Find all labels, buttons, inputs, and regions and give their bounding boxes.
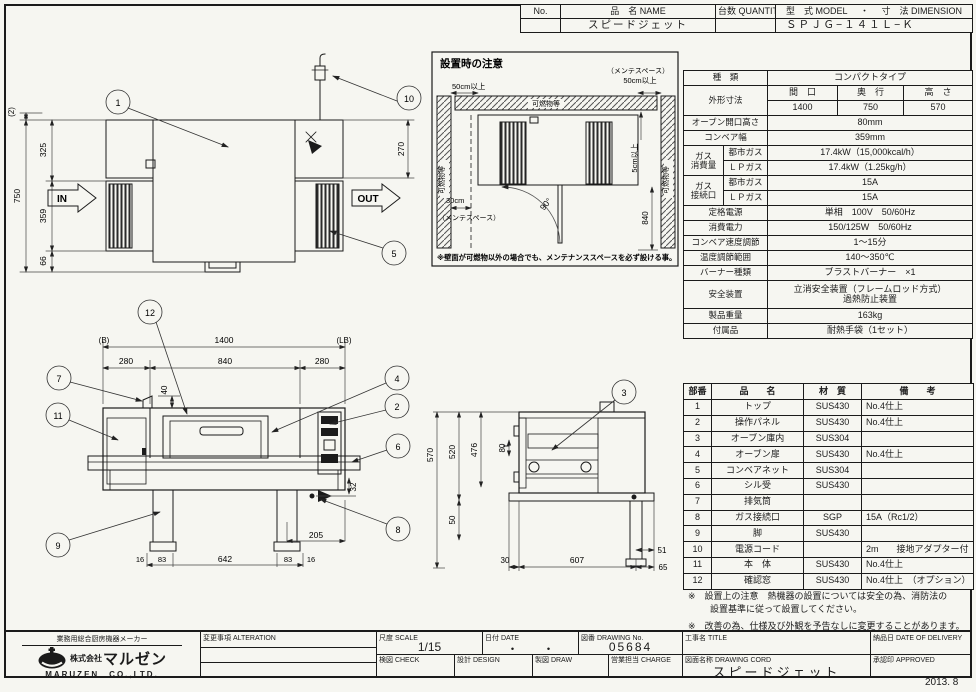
header-no-value	[521, 19, 561, 33]
issue-date: 2013. 8	[925, 677, 958, 688]
spec-city-gas-label: 都市ガス	[724, 146, 768, 161]
parts-cell: SUS430	[804, 447, 862, 463]
spec-conn-city-value: 15A	[768, 176, 973, 191]
parts-header-cell: 部番	[684, 384, 712, 400]
parts-cell	[804, 494, 862, 510]
spec-consumption-value: 150/125W 50/60Hz	[768, 221, 973, 236]
plan-in-label: IN	[57, 194, 67, 205]
plan-balloon-1: 1	[115, 98, 120, 108]
spec-burner-label: バーナー種類	[684, 266, 768, 281]
spec-conn-city-label: 都市ガス	[724, 176, 768, 191]
spec-lp-gas-value: 17.4kW（1.25kg/h）	[768, 161, 973, 176]
parts-cell: 5	[684, 463, 712, 479]
plan-dim-325: 325	[38, 143, 48, 157]
parts-row: 10電源コード2m 接地アダプター付	[684, 542, 974, 558]
header-name-value: スピードジェット	[561, 19, 716, 33]
parts-cell: 6	[684, 478, 712, 494]
side-dim-80: 80	[498, 443, 507, 452]
front-dim-280l: 280	[119, 356, 133, 366]
spec-accessory-label: 付属品	[684, 324, 768, 339]
side-dim-607: 607	[570, 555, 584, 565]
parts-header-cell: 材 質	[804, 384, 862, 400]
parts-header-row: 部番品 名材 質備 考	[684, 384, 974, 400]
parts-cell: SUS304	[804, 431, 862, 447]
front-balloon-9: 9	[55, 541, 60, 551]
spec-speed-value: 1〜15分	[768, 236, 973, 251]
side-dim-476: 476	[469, 443, 479, 457]
install-note-view: 設置時の注意 可燃物等 可燃物等 可燃物等 90°	[432, 52, 678, 266]
charge-label: 営業担当 CHARGE	[611, 655, 671, 665]
spec-height-label: 高 さ	[904, 86, 973, 101]
drawing-sheet: (2) 325 750 359 66 270 IN OUT 1 10 5	[0, 0, 976, 692]
plan-dim-750: 750	[12, 189, 22, 203]
note-1-line-1: ※ 設置上の注意 熱機器の設置については安全の為、消防法の	[688, 590, 972, 603]
parts-cell: 電源コード	[712, 542, 804, 558]
header-qty-label: 台数 QUANTITY	[716, 5, 776, 19]
design-label: 設計 DESIGN	[457, 655, 500, 665]
front-dim-83r: 83	[284, 555, 292, 564]
plan-dim-359: 359	[38, 209, 48, 223]
plan-balloon-5: 5	[391, 249, 396, 259]
parts-cell: SUS304	[804, 463, 862, 479]
parts-cell: 9	[684, 526, 712, 542]
parts-cell: No.4仕上	[862, 447, 974, 463]
spec-power-label: 定格電源	[684, 206, 768, 221]
install-footnote: ※壁面が可燃物以外の場合でも、メンテナンススペースを必ず設ける事。	[437, 253, 676, 262]
front-dim-280r: 280	[315, 356, 329, 366]
side-dim-30: 30	[501, 556, 510, 565]
spec-weight-value: 163kg	[768, 309, 973, 324]
company-tagline: 業務用総合厨房機器メーカー	[22, 634, 182, 646]
parts-cell: 12	[684, 573, 712, 589]
header-model-dim-label: 型 式 MODEL ・ 寸 法 DIMENSION	[776, 5, 973, 19]
header-dot: ・	[860, 7, 869, 17]
front-balloon-6: 6	[395, 442, 400, 452]
spec-speed-label: コンベア速度調節	[684, 236, 768, 251]
parts-cell	[804, 542, 862, 558]
spec-width-label: 間 口	[768, 86, 838, 101]
install-title: 設置時の注意	[440, 57, 503, 70]
parts-cell: 4	[684, 447, 712, 463]
plan-dim-270: 270	[396, 142, 406, 156]
parts-row: 6シル受SUS430	[684, 478, 974, 494]
plan-dim-2: (2)	[7, 107, 16, 117]
parts-cell: SUS430	[804, 478, 862, 494]
front-balloon-2: 2	[394, 402, 399, 412]
parts-cell: 1	[684, 400, 712, 416]
approved-cell: 承認印 APPROVED	[870, 654, 970, 678]
parts-header-cell: 備 考	[862, 384, 974, 400]
front-balloon-12: 12	[145, 308, 155, 318]
plan-out-label: OUT	[357, 194, 378, 205]
install-maint-left: （メンテスペース）	[438, 214, 500, 222]
parts-row: 3オーブン庫内SUS304	[684, 431, 974, 447]
company-prefix: 株式会社	[70, 653, 102, 664]
parts-row: 4オーブン扉SUS430No.4仕上	[684, 447, 974, 463]
draw-label: 製図 DRAW	[535, 655, 572, 665]
front-dim-16r: 16	[307, 555, 315, 564]
parts-cell: 2m 接地アダプター付	[862, 542, 974, 558]
plan-view: (2) 325 750 359 66 270 IN OUT 1 10 5	[7, 54, 421, 272]
spec-open-height-label: オーブン開口高さ	[684, 116, 768, 131]
parts-cell: 11	[684, 557, 712, 573]
general-notes: ※ 設置上の注意 熱機器の設置については安全の為、消防法の 設置基準に従って設置…	[688, 590, 972, 633]
spec-city-gas-value: 17.4kW（15,000kcal/h）	[768, 146, 973, 161]
parts-cell: シル受	[712, 478, 804, 494]
header-model-value: ＳＰＪＧ−１４１Ｌ−Ｋ	[776, 19, 973, 33]
header-qty-value	[716, 19, 776, 33]
side-balloon-3: 3	[621, 388, 626, 398]
front-dim-840: 840	[218, 356, 232, 366]
spec-gas-use-label: ガス 消費量	[684, 146, 724, 176]
maruzen-logo-icon	[37, 647, 67, 669]
plan-dim-66: 66	[38, 256, 48, 266]
parts-cell: No.4仕上	[862, 400, 974, 416]
parts-cell	[862, 431, 974, 447]
parts-cell: オーブン庫内	[712, 431, 804, 447]
spec-conn-lp-value: 15A	[768, 191, 973, 206]
date-cell: 日付 DATE ・ ・	[482, 632, 578, 654]
alteration-divider-2	[201, 662, 376, 663]
parts-table: 部番品 名材 質備 考 1トップSUS430No.4仕上2操作パネルSUS430…	[683, 383, 974, 590]
front-balloon-11: 11	[53, 411, 62, 421]
spec-type-value: コンパクトタイプ	[768, 71, 973, 86]
delivery-date-cell: 納品日 DATE OF DELIVERY	[870, 632, 970, 654]
parts-cell: ガス接続口	[712, 510, 804, 526]
install-dim-5: 5cm以上	[630, 143, 639, 173]
side-dim-65: 65	[659, 563, 668, 572]
draw-cell: 製図 DRAW	[532, 654, 608, 678]
parts-cell: 排気筒	[712, 494, 804, 510]
install-dim-840: 840	[641, 211, 650, 225]
parts-cell: 3	[684, 431, 712, 447]
side-dim-570: 570	[425, 448, 435, 462]
spec-safety-value: 立消安全装置（フレームロッド方式） 過熱防止装置	[768, 281, 973, 309]
drawing-no-value: 05684	[579, 640, 682, 654]
front-dim-1400: 1400	[215, 335, 234, 345]
spec-safety-label: 安全装置	[684, 281, 768, 309]
spec-table: 種 類 コンパクトタイプ 外形寸法 間 口 奥 行 高 さ 1400 750 5…	[683, 70, 973, 339]
parts-cell: 10	[684, 542, 712, 558]
parts-cell: コンベアネット	[712, 463, 804, 479]
parts-cell: No.4仕上	[862, 415, 974, 431]
parts-row: 9脚SUS430	[684, 526, 974, 542]
project-title-cell: 工事名 TITLE	[682, 632, 870, 654]
spec-width-value: 1400	[768, 101, 838, 116]
install-wall-top-label: 可燃物等	[532, 99, 560, 108]
approved-label: 承認印 APPROVED	[873, 655, 935, 665]
spec-power-value: 単相 100V 50/60Hz	[768, 206, 973, 221]
parts-cell: SGP	[804, 510, 862, 526]
check-cell: 検図 CHECK	[376, 654, 454, 678]
install-wall-right-label: 可燃物等	[661, 166, 670, 194]
front-dim-40: 40	[160, 385, 169, 394]
side-dim-50: 50	[448, 515, 457, 524]
parts-cell: SUS430	[804, 557, 862, 573]
front-dim-32: 32	[349, 482, 358, 491]
scale-value: 1/15	[377, 640, 482, 654]
parts-cell: 7	[684, 494, 712, 510]
parts-cell: 本 体	[712, 557, 804, 573]
front-balloon-4: 4	[394, 374, 399, 384]
header-no-label: No.	[521, 5, 561, 19]
parts-cell	[862, 478, 974, 494]
spec-height-value: 570	[904, 101, 973, 116]
spec-type-label: 種 類	[684, 71, 768, 86]
front-balloon-8: 8	[395, 525, 400, 535]
spec-safety-value-2: 過熱防止装置	[770, 295, 970, 304]
front-dim-205: 205	[309, 530, 323, 540]
front-datum-lb: (LB)	[336, 336, 351, 345]
spec-gas-conn-label: ガス 接続口	[684, 176, 724, 206]
install-dim-50-left: 50cm以上	[452, 82, 486, 91]
spec-weight-label: 製品重量	[684, 309, 768, 324]
header-model-label: 型 式 MODEL	[786, 7, 848, 17]
parts-cell: No.4仕上	[862, 557, 974, 573]
delivery-date-label: 納品日 DATE OF DELIVERY	[873, 633, 962, 643]
spec-belt-width-label: コンベア幅	[684, 131, 768, 146]
design-cell: 設計 DESIGN	[454, 654, 532, 678]
install-dim-30: 30cm	[446, 196, 464, 205]
parts-cell: 脚	[712, 526, 804, 542]
parts-cell	[862, 526, 974, 542]
parts-cell: 2	[684, 415, 712, 431]
spec-lp-gas-label: ＬＰガス	[724, 161, 768, 176]
parts-row: 8ガス接続口SGP15A（Rc1/2）	[684, 510, 974, 526]
parts-cell: SUS430	[804, 400, 862, 416]
header-table: No. 品 名 NAME 台数 QUANTITY 型 式 MODEL ・ 寸 法…	[520, 4, 973, 33]
front-dim-642: 642	[218, 554, 232, 564]
charge-cell: 営業担当 CHARGE	[608, 654, 682, 678]
check-label: 検図 CHECK	[379, 655, 419, 665]
parts-header-cell: 品 名	[712, 384, 804, 400]
side-dim-520: 520	[447, 445, 457, 459]
install-maint-right: （メンテスペース）	[607, 67, 669, 75]
spec-consumption-label: 消費電力	[684, 221, 768, 236]
parts-row: 2操作パネルSUS430No.4仕上	[684, 415, 974, 431]
alteration-label: 変更事項 ALTERATION	[203, 633, 276, 643]
parts-cell: 確認窓	[712, 573, 804, 589]
spec-burner-value: ブラストバーナー ×1	[768, 266, 973, 281]
project-title-label: 工事名 TITLE	[685, 633, 727, 643]
parts-row: 5コンベアネットSUS304	[684, 463, 974, 479]
spec-temp-value: 140〜350℃	[768, 251, 973, 266]
side-dim-51: 51	[658, 546, 667, 555]
parts-row: 12確認窓SUS430No.4仕上 （オプション）	[684, 573, 974, 589]
install-dim-50-right: 50cm以上	[623, 76, 657, 85]
company-name: マルゼン	[103, 648, 167, 669]
parts-cell: No.4仕上 （オプション）	[862, 573, 974, 589]
header-name-label: 品 名 NAME	[561, 5, 716, 19]
parts-cell: オーブン扉	[712, 447, 804, 463]
company-name-en: MARUZEN CO.,LTD.	[4, 669, 200, 680]
spec-belt-width-value: 359mm	[768, 131, 973, 146]
spec-depth-value: 750	[838, 101, 904, 116]
front-dim-83l: 83	[158, 555, 166, 564]
header-dim-label: 寸 法 DIMENSION	[881, 7, 962, 17]
spec-dims-label: 外形寸法	[684, 86, 768, 116]
parts-cell: 8	[684, 510, 712, 526]
alteration-cell: 変更事項 ALTERATION	[200, 632, 376, 678]
scale-cell: 尺度 SCALE 1/15	[376, 632, 482, 654]
install-wall-left-label: 可燃物等	[437, 166, 446, 194]
parts-cell: 15A（Rc1/2）	[862, 510, 974, 526]
side-view: 570 520 476 80 50 30 607 65 51 3	[425, 380, 668, 572]
parts-row: 7排気筒	[684, 494, 974, 510]
parts-row: 11本 体SUS430No.4仕上	[684, 557, 974, 573]
spec-conn-lp-label: ＬＰガス	[724, 191, 768, 206]
drawing-name-value: スピードジェット	[683, 662, 870, 681]
parts-cell: 操作パネル	[712, 415, 804, 431]
spec-accessory-value: 耐熱手袋（1セット）	[768, 324, 973, 339]
note-1-line-2: 設置基準に従って設置してください。	[688, 603, 972, 616]
front-balloon-7: 7	[56, 374, 61, 384]
drawing-name-cell: 図面名称 DRAWING CORD スピードジェット	[682, 654, 870, 678]
parts-cell	[862, 494, 974, 510]
alteration-divider-1	[201, 647, 376, 648]
spec-gas-use-label-2: 消費量	[686, 161, 721, 170]
parts-cell: SUS430	[804, 526, 862, 542]
plan-balloon-10: 10	[404, 94, 414, 104]
parts-row: 1トップSUS430No.4仕上	[684, 400, 974, 416]
spec-open-height-value: 80mm	[768, 116, 973, 131]
parts-cell: SUS430	[804, 573, 862, 589]
spec-gas-conn-label-2: 接続口	[686, 191, 721, 200]
front-view: (B) 1400 (LB) 280 840 280 40	[46, 300, 410, 567]
parts-cell: トップ	[712, 400, 804, 416]
parts-cell: SUS430	[804, 415, 862, 431]
parts-cell	[862, 463, 974, 479]
title-block: 業務用総合厨房機器メーカー 株式会社 マルゼン MARUZEN CO.,LTD.…	[4, 630, 970, 678]
drawing-no-cell: 図番 DRAWING No. 05684	[578, 632, 682, 654]
front-datum-b: (B)	[99, 336, 110, 345]
spec-depth-label: 奥 行	[838, 86, 904, 101]
spec-temp-label: 温度調節範囲	[684, 251, 768, 266]
company-logo-cell: 業務用総合厨房機器メーカー 株式会社 マルゼン MARUZEN CO.,LTD.	[4, 632, 200, 678]
front-dim-16l: 16	[136, 555, 144, 564]
